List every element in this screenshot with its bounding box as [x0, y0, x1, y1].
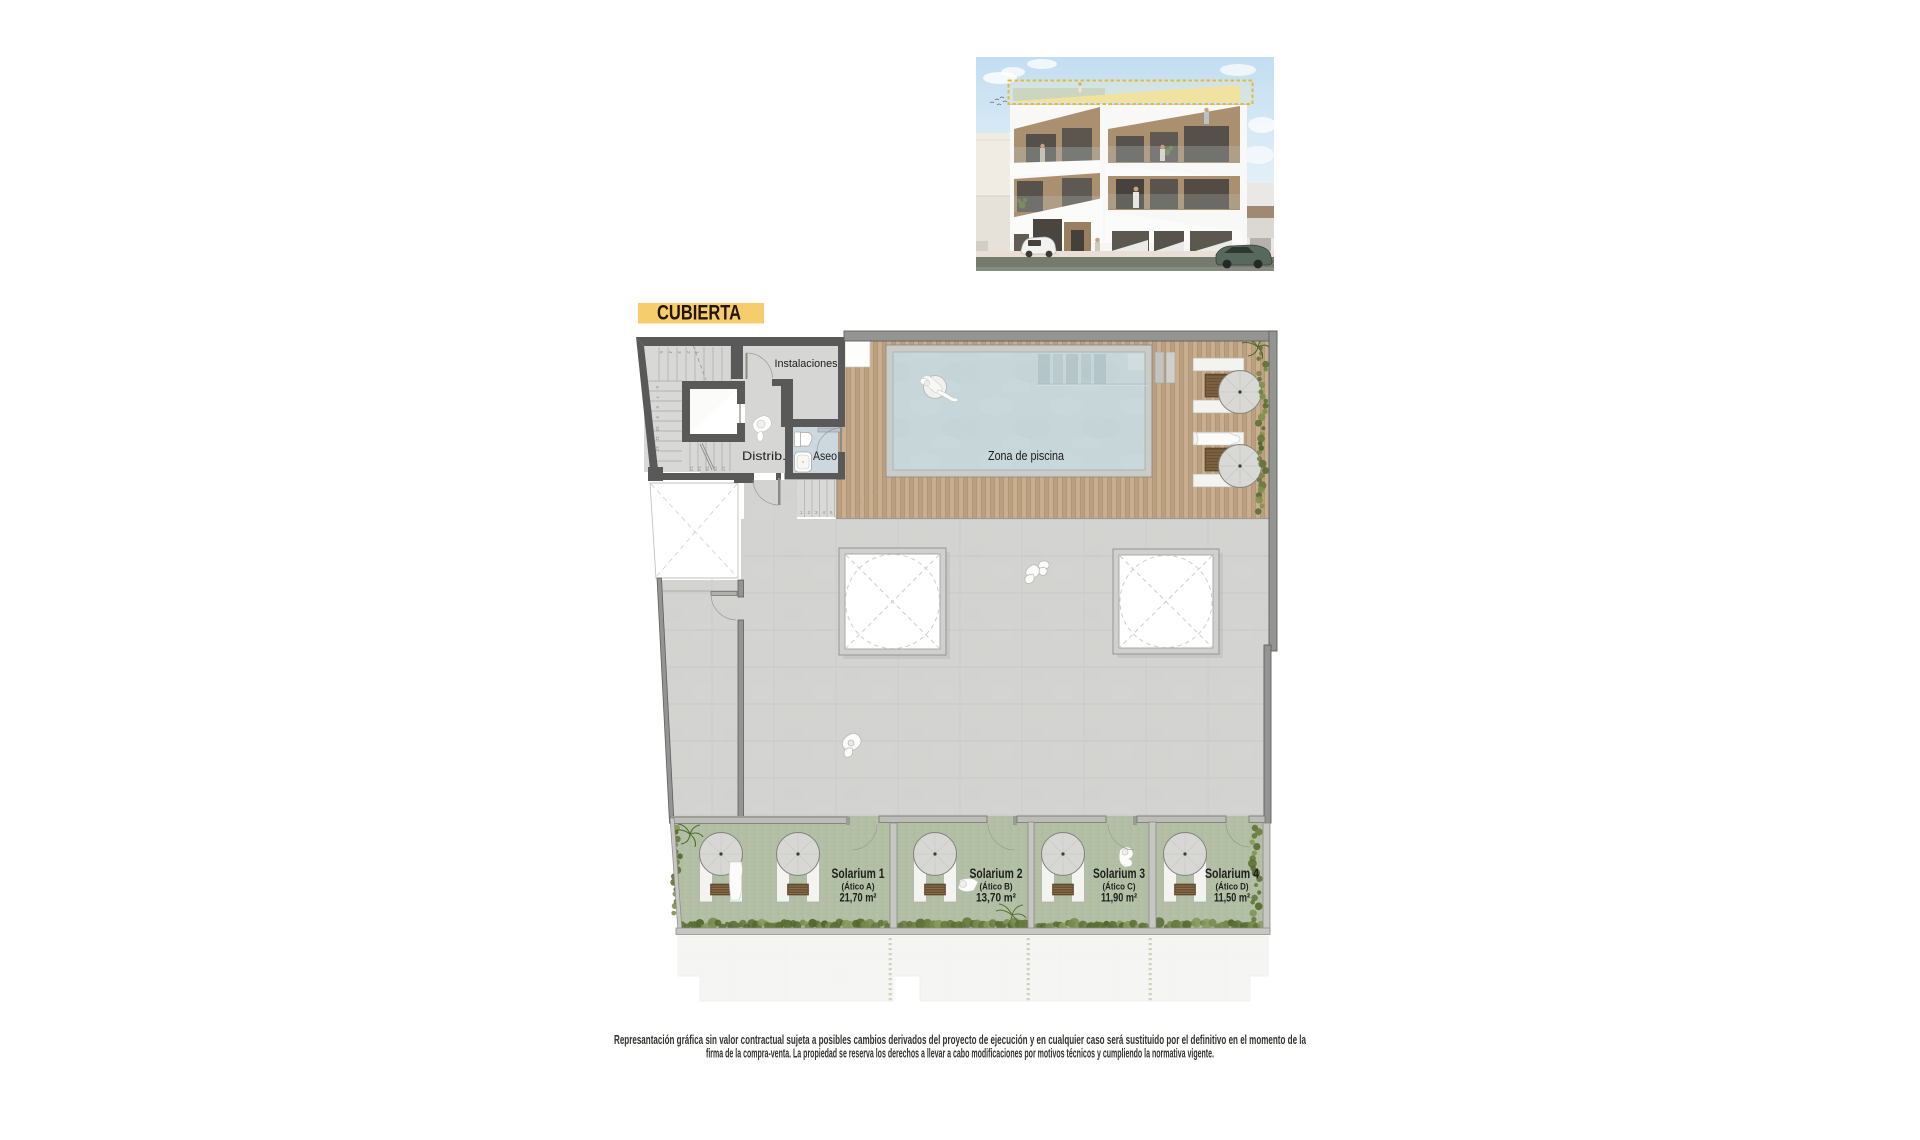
- svg-text:firma de la compra-venta. La p: firma de la compra-venta. La propiedad s…: [706, 1046, 1214, 1061]
- svg-text:Solarium 4: Solarium 4: [1205, 866, 1259, 881]
- svg-text:11,90 m²: 11,90 m²: [1101, 891, 1137, 905]
- svg-text:CUBIERTA: CUBIERTA: [657, 302, 741, 325]
- svg-text:Zona de piscina: Zona de piscina: [988, 449, 1064, 463]
- svg-text:14: 14: [697, 466, 702, 472]
- svg-text:17: 17: [721, 466, 726, 472]
- svg-text:13,70 m²: 13,70 m²: [976, 891, 1016, 905]
- svg-text:15: 15: [705, 466, 710, 472]
- svg-text:Instalaciones: Instalaciones: [775, 358, 838, 370]
- svg-text:21,70 m²: 21,70 m²: [840, 891, 877, 905]
- svg-text:Solarium 3: Solarium 3: [1093, 866, 1145, 881]
- svg-text:11: 11: [655, 436, 660, 441]
- svg-text:Distrib.: Distrib.: [742, 449, 786, 463]
- svg-text:11,50 m²: 11,50 m²: [1214, 891, 1250, 905]
- svg-text:13: 13: [689, 466, 694, 472]
- svg-text:Solarium 1: Solarium 1: [832, 866, 885, 881]
- svg-text:10: 10: [655, 426, 660, 432]
- svg-text:Solarium 2: Solarium 2: [970, 866, 1023, 881]
- svg-text:Aseo: Aseo: [813, 449, 837, 463]
